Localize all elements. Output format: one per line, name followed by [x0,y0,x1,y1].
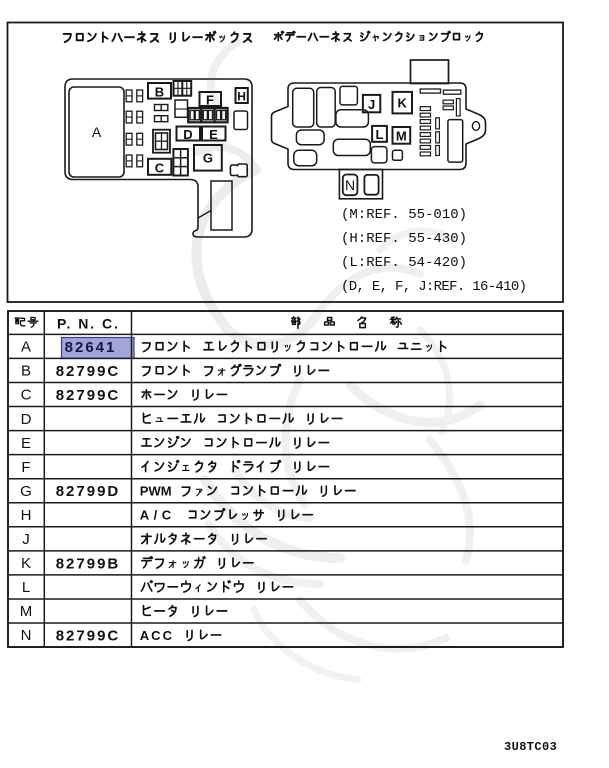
svg-text:P. N. C.: P. N. C. [57,315,118,331]
svg-text:M: M [396,129,407,144]
svg-text:H: H [21,507,32,524]
svg-text:82799C: 82799C [56,387,121,404]
svg-text:J: J [368,97,375,112]
svg-text:C: C [21,387,32,404]
svg-text:A: A [92,124,102,140]
svg-text:F: F [21,459,30,476]
svg-text:E: E [21,435,31,452]
svg-text:B: B [21,363,31,380]
svg-text:N: N [21,627,32,644]
svg-text:H: H [237,90,246,104]
svg-text:A/C: A/C [140,508,176,523]
svg-text:(H:REF. 55-430): (H:REF. 55-430) [341,231,467,247]
svg-text:(D, E, F, J:REF. 16-410): (D, E, F, J:REF. 16-410) [341,279,527,295]
svg-text:D: D [183,127,192,142]
svg-text:N: N [345,177,355,193]
svg-text:L: L [22,579,30,596]
svg-text:G: G [20,483,32,500]
svg-text:82641: 82641 [65,339,117,356]
svg-text:K: K [398,96,408,111]
svg-text:82799B: 82799B [56,555,121,572]
svg-text:82799D: 82799D [56,483,121,500]
svg-text:F: F [206,93,214,108]
svg-text:(M:REF. 55-010): (M:REF. 55-010) [341,207,467,223]
svg-text:C: C [155,161,165,176]
svg-text:J: J [22,531,30,548]
svg-text:82799C: 82799C [56,627,121,644]
svg-text:PWM: PWM [140,484,172,499]
svg-text:D: D [21,411,32,428]
svg-text:3U8TC03: 3U8TC03 [504,740,557,754]
svg-text:L: L [376,127,384,142]
svg-text:M: M [20,603,33,620]
svg-text:B: B [155,85,164,100]
svg-text:G: G [203,151,213,166]
svg-text:82799C: 82799C [56,363,121,380]
svg-text:K: K [21,555,31,572]
svg-text:(L:REF. 54-420): (L:REF. 54-420) [341,255,467,271]
svg-text:ACC: ACC [140,628,174,643]
svg-text:A: A [21,339,31,356]
svg-text:E: E [209,127,218,142]
